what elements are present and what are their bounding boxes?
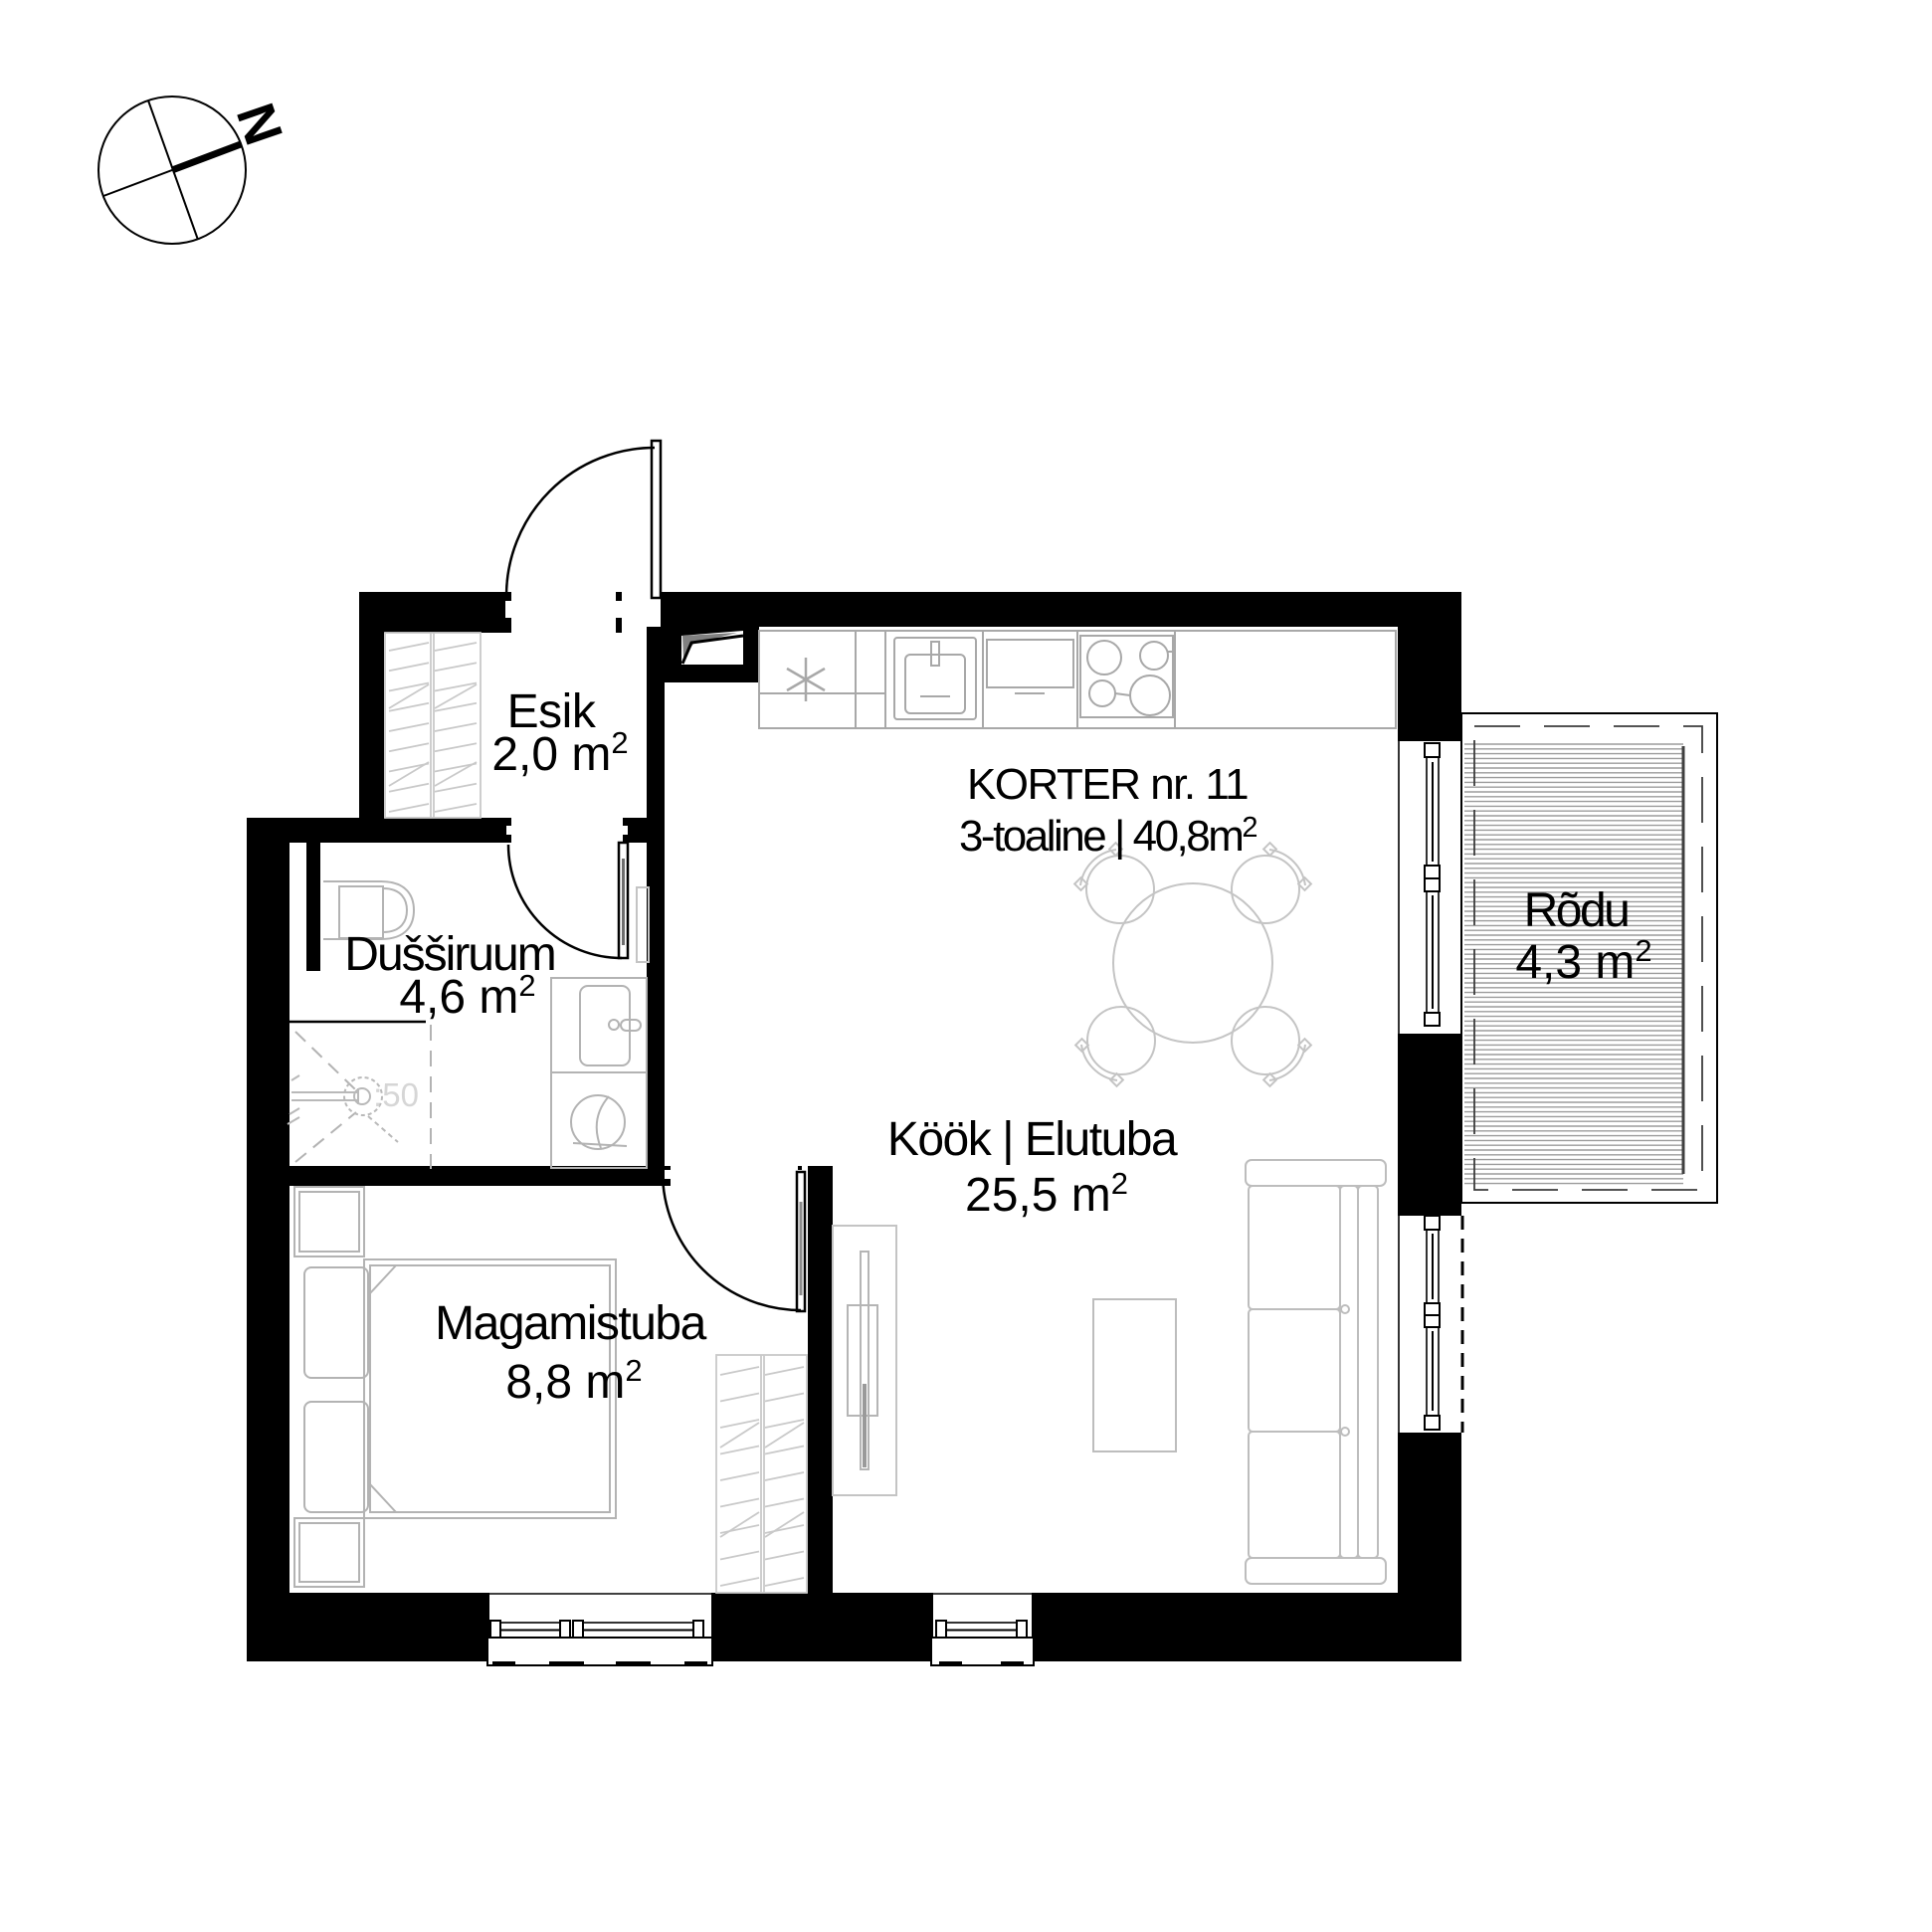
svg-text:3-toaline | 40,8m2: 3-toaline | 40,8m2 <box>959 812 1256 861</box>
svg-text:4,6 m2: 4,6 m2 <box>399 968 535 1024</box>
svg-text:Magamistuba: Magamistuba <box>435 1297 706 1350</box>
svg-text:2,0 m2: 2,0 m2 <box>491 725 628 781</box>
svg-text::50: :50 <box>373 1076 419 1113</box>
svg-text:Rõdu: Rõdu <box>1524 884 1629 937</box>
svg-text:4,3 m2: 4,3 m2 <box>1515 933 1651 989</box>
svg-text:Köök | Elutuba: Köök | Elutuba <box>887 1113 1178 1166</box>
svg-text:25,5 m2: 25,5 m2 <box>965 1166 1128 1222</box>
svg-text:KORTER nr. 11: KORTER nr. 11 <box>967 760 1248 809</box>
svg-text:8,8 m2: 8,8 m2 <box>505 1353 642 1409</box>
